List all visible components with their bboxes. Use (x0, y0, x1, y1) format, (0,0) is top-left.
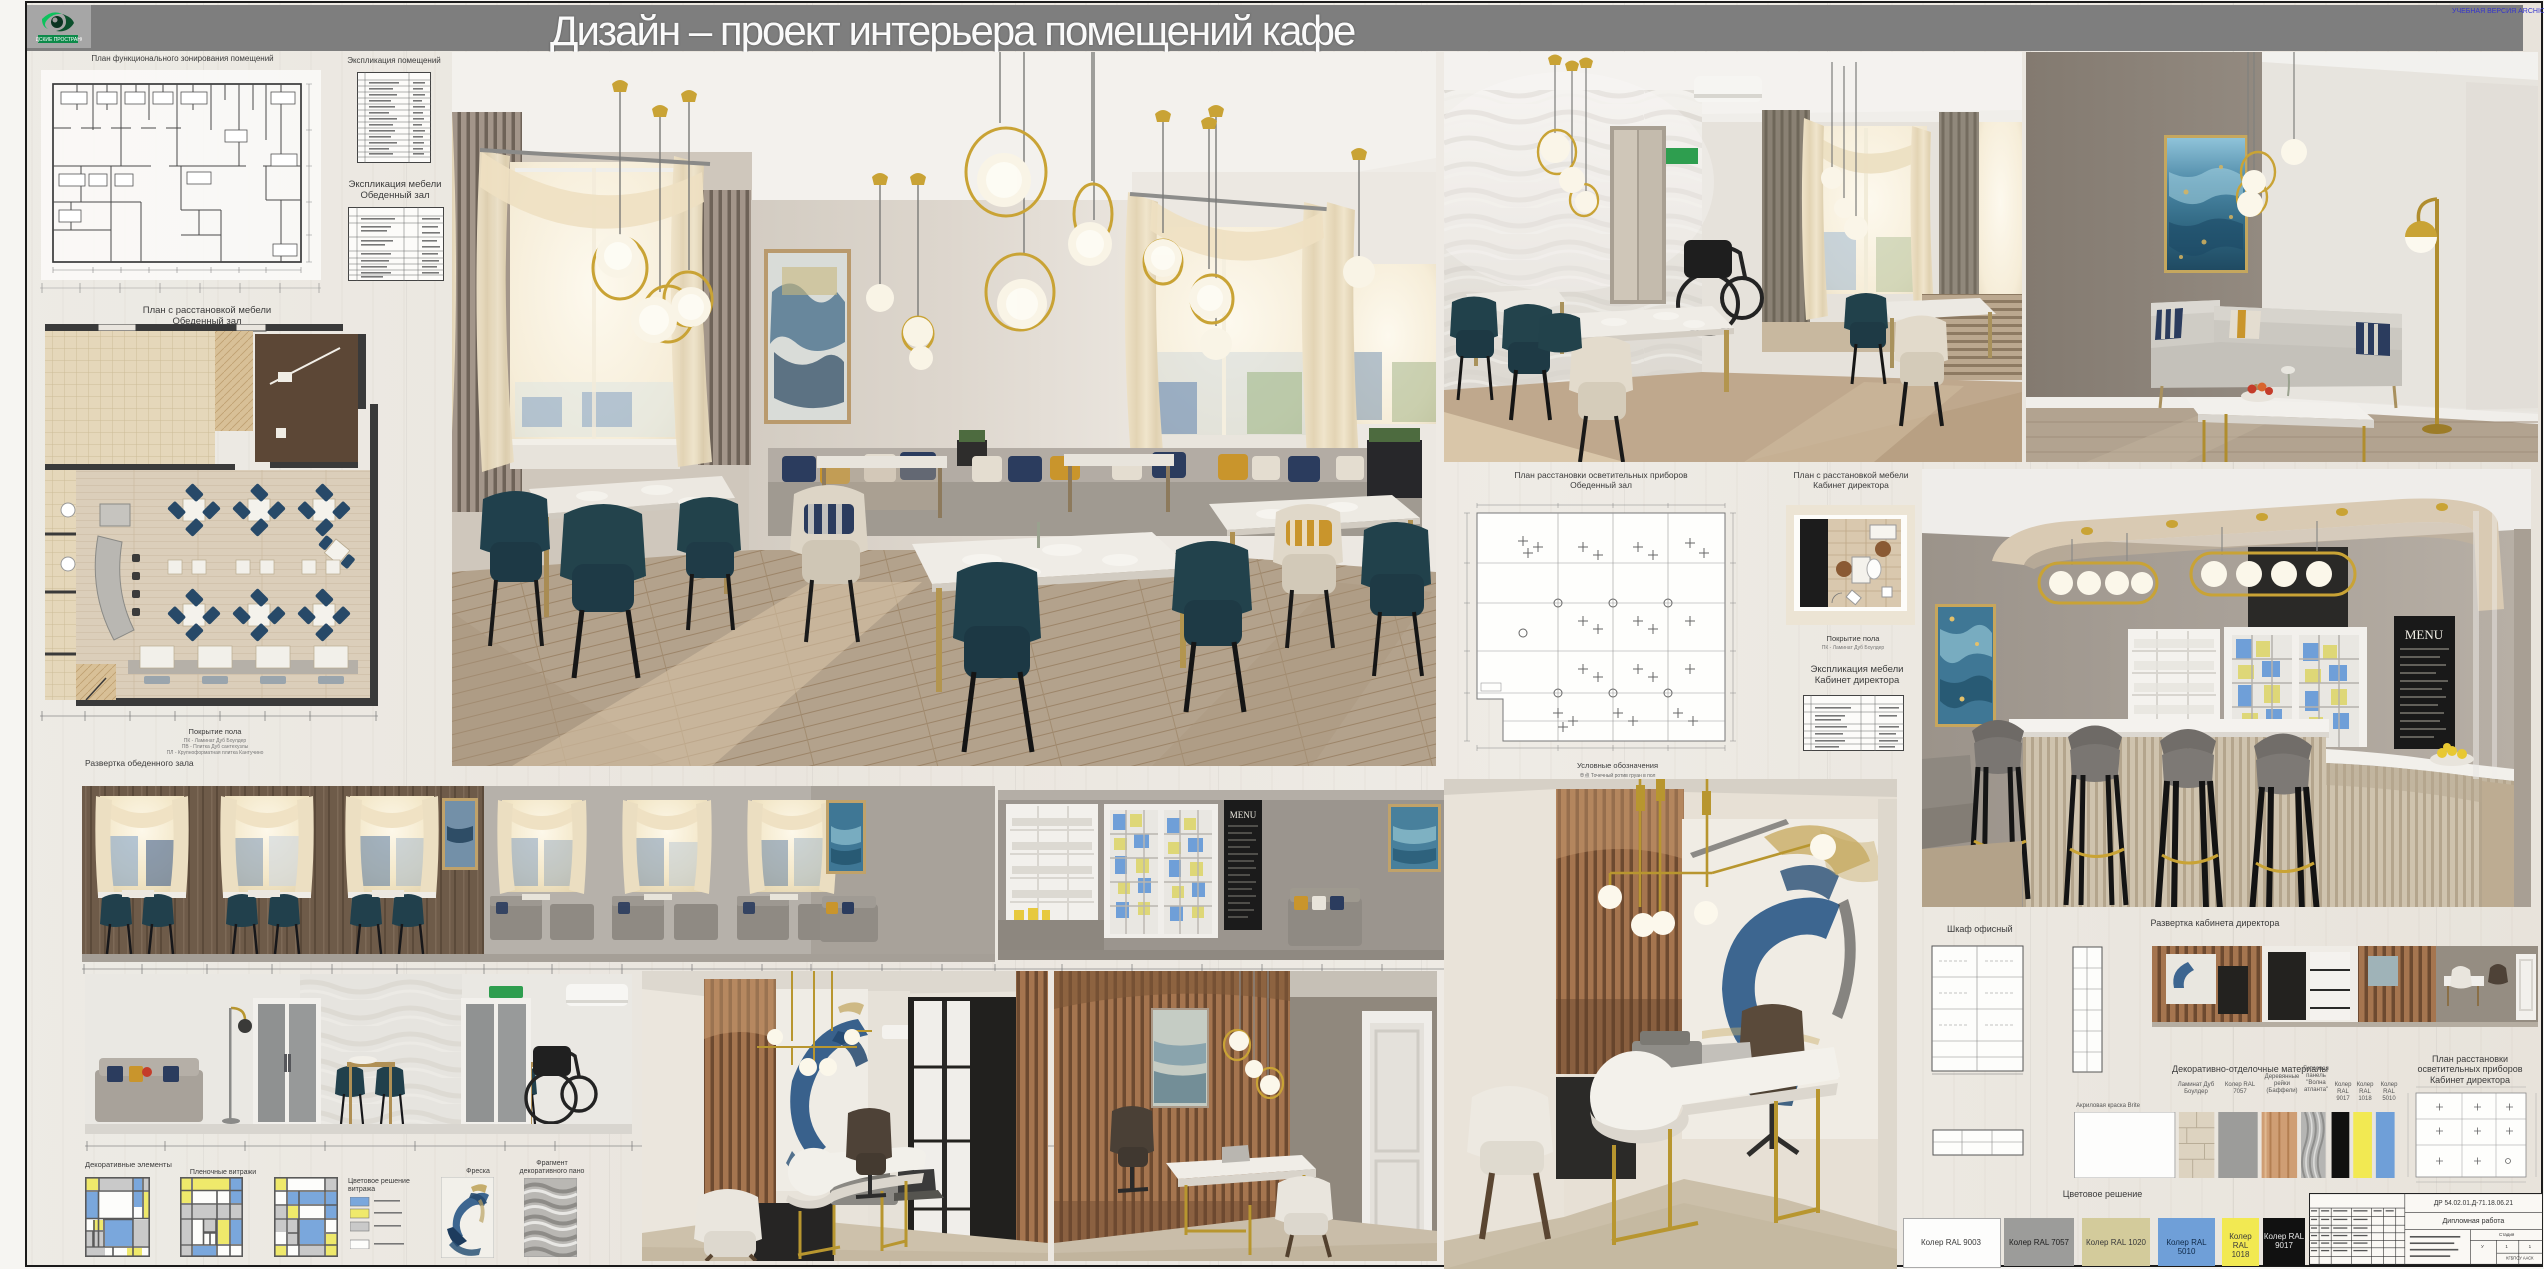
svg-text:ГОРОДСКИЕ ПРОСТРАНСТВА: ГОРОДСКИЕ ПРОСТРАНСТВА (36, 37, 82, 43)
svg-text:MENU: MENU (1230, 810, 1257, 820)
svg-text:ДР 54.02.01.Д-71.18.06.21: ДР 54.02.01.Д-71.18.06.21 (2434, 1200, 2513, 1207)
svg-text:Дипломная работа: Дипломная работа (2443, 1216, 2506, 1225)
svg-text:У: У (2481, 1244, 2484, 1249)
svg-text:КГБПОУ ААСК: КГБПОУ ААСК (2506, 1256, 2534, 1261)
svg-text:Стадия: Стадия (2499, 1232, 2515, 1237)
svg-text:1: 1 (2529, 1244, 2532, 1249)
svg-text:1: 1 (2505, 1244, 2508, 1249)
svg-text:MENU: MENU (2405, 627, 2444, 642)
